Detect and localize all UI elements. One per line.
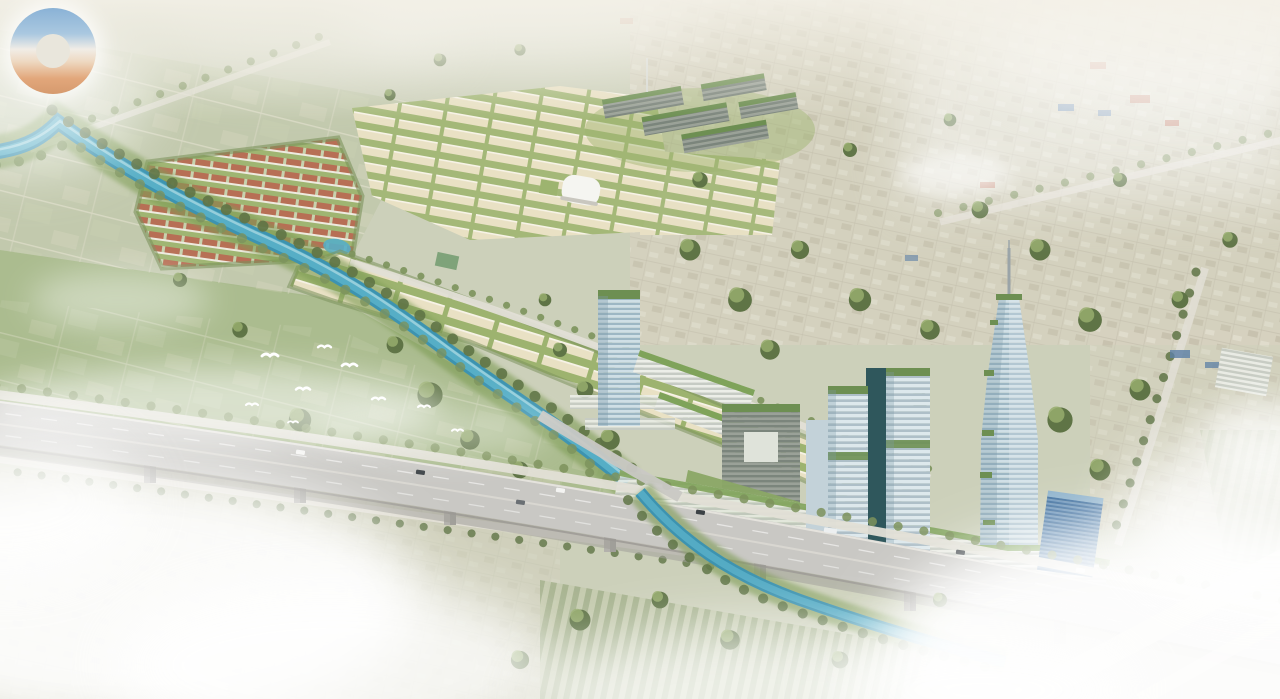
aerial-rendering [0, 0, 1280, 699]
logo-ring-hole [36, 34, 70, 68]
rendering-scene [0, 0, 1280, 699]
sky-haze [0, 0, 1280, 120]
logo-badge [10, 8, 96, 94]
